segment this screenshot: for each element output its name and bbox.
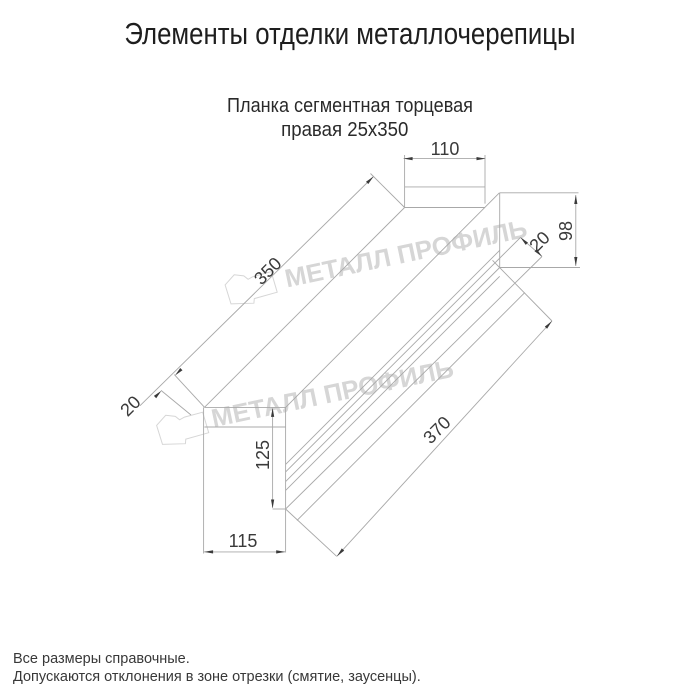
svg-text:98: 98: [556, 221, 576, 241]
svg-text:20: 20: [116, 392, 144, 420]
svg-text:МЕТАЛЛ ПРОФИЛЬ: МЕТАЛЛ ПРОФИЛЬ: [282, 215, 529, 293]
svg-text:125: 125: [253, 440, 273, 470]
svg-text:110: 110: [431, 139, 460, 159]
svg-text:МЕТАЛЛ ПРОФИЛЬ: МЕТАЛЛ ПРОФИЛЬ: [209, 355, 456, 433]
svg-text:370: 370: [419, 412, 454, 447]
svg-text:115: 115: [229, 531, 258, 551]
svg-text:20: 20: [525, 227, 553, 255]
